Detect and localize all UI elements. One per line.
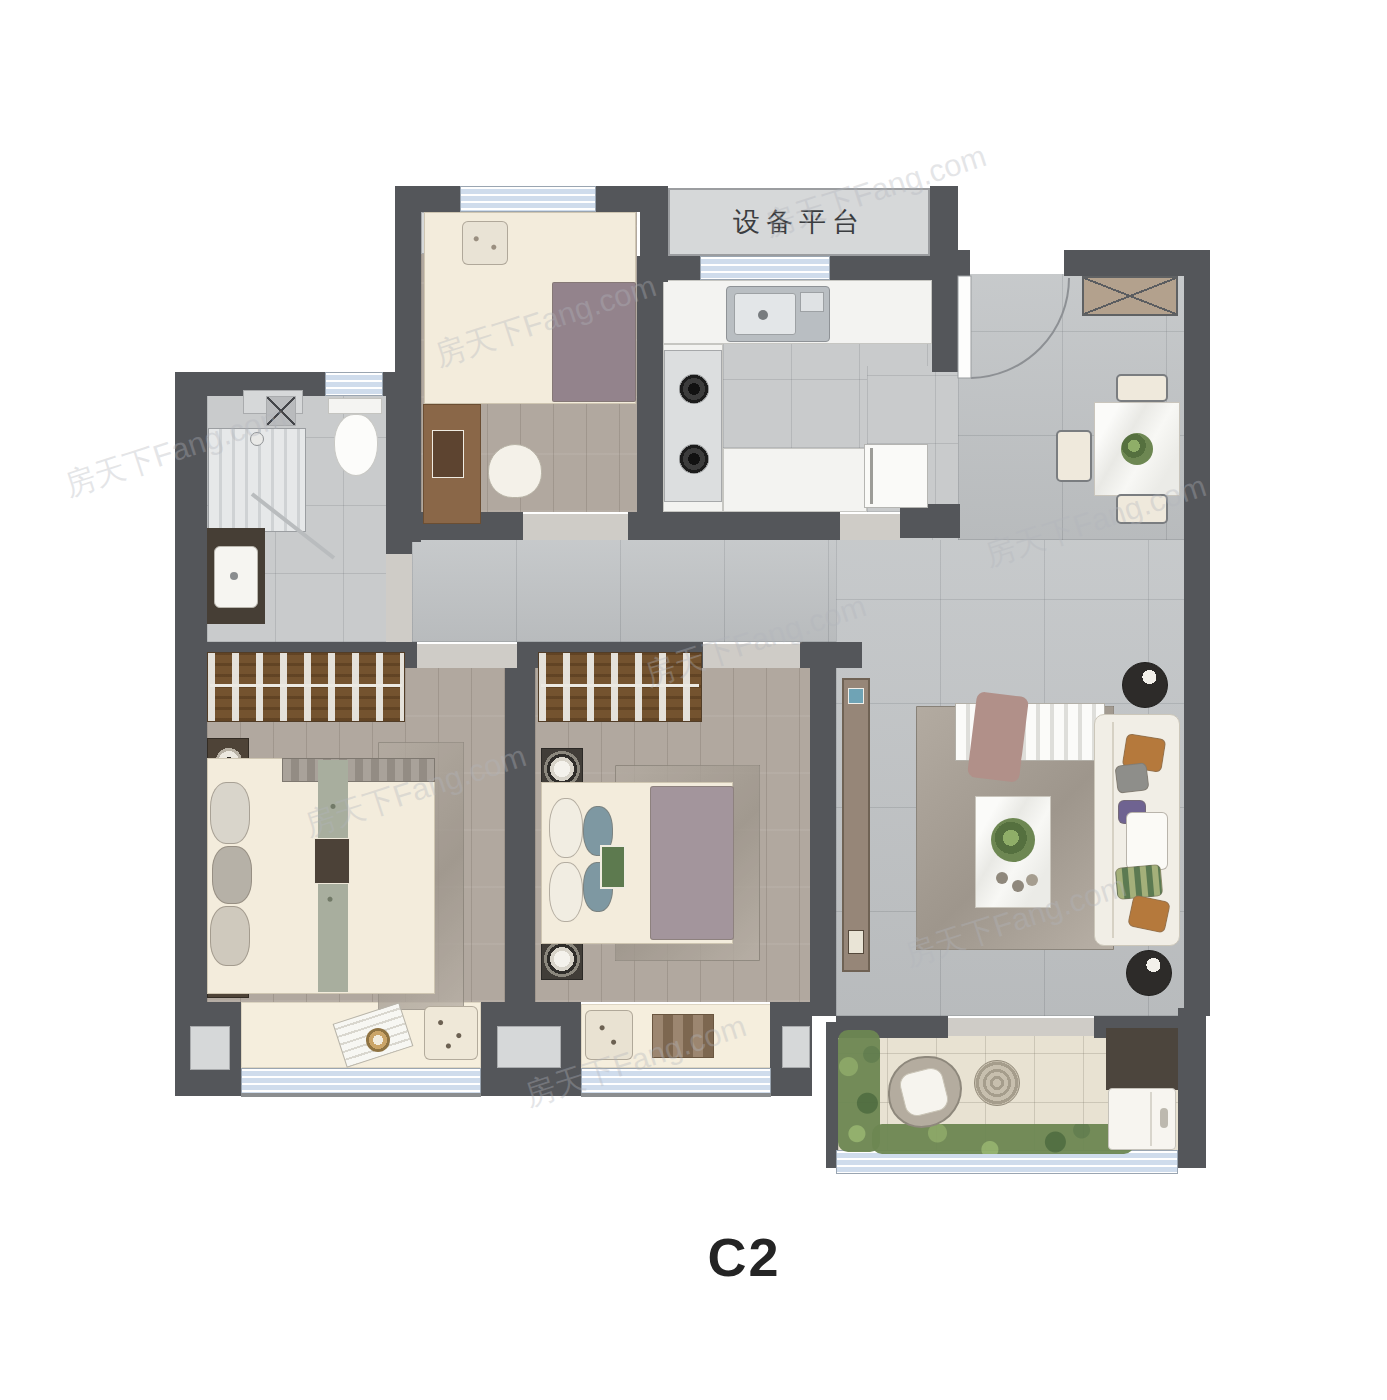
wall-right-outer	[1184, 250, 1210, 1016]
side-table	[1122, 662, 1168, 708]
wall	[628, 512, 840, 540]
floor-plan-page: 设备平台	[0, 0, 1387, 1400]
toilet-bowl	[334, 414, 378, 476]
kitchen-sink-drainboard	[800, 292, 824, 312]
wall-left-outer	[175, 372, 207, 1096]
duct-shaft-icon	[266, 396, 296, 426]
entry-door	[956, 252, 1072, 384]
pillow	[212, 846, 252, 904]
pillow	[210, 906, 250, 966]
nightstand-round	[541, 938, 583, 980]
dining-chair	[1116, 374, 1168, 402]
ottoman	[974, 1060, 1020, 1106]
ac-platform	[782, 1026, 810, 1068]
bay-cup	[366, 1028, 390, 1052]
cabinet-decor	[848, 930, 864, 954]
shower-head-icon	[250, 432, 264, 446]
wall	[505, 668, 535, 1004]
kitchen-counter-bottom	[723, 448, 867, 512]
desk-items	[432, 430, 464, 478]
wardrobe-bedroom2	[538, 652, 702, 722]
window-master-bay	[241, 1068, 481, 1094]
kitchen-faucet-icon	[758, 310, 768, 320]
shoe-cabinet	[1082, 276, 1178, 316]
door-threshold-balcony	[948, 1018, 1094, 1036]
kitchen-appliance	[864, 444, 928, 508]
blanket	[650, 786, 734, 940]
bay-pillow	[424, 1006, 478, 1060]
equipment-platform: 设备平台	[668, 188, 930, 256]
ac-platform	[497, 1026, 561, 1068]
pillow	[210, 782, 250, 844]
wall	[900, 504, 960, 538]
wardrobe-master	[207, 652, 405, 722]
bed-master-bench	[282, 758, 435, 782]
wall	[826, 1022, 838, 1168]
window-sill	[241, 1093, 481, 1097]
bay-pillow	[585, 1010, 633, 1060]
blanket	[552, 282, 636, 402]
door-threshold-master-bedroom	[417, 644, 517, 668]
wall	[830, 256, 932, 280]
wall	[395, 186, 463, 212]
pillow	[549, 798, 583, 858]
tall-cabinet	[842, 678, 870, 972]
bed-tray	[314, 838, 350, 884]
wall	[386, 396, 412, 554]
vanity-faucet-icon	[230, 572, 238, 580]
wall	[1178, 1008, 1206, 1168]
desk-chair	[488, 444, 542, 498]
tv-blanket	[967, 691, 1029, 783]
sofa-seat-line	[1112, 722, 1114, 938]
window-bedroom2-bay	[581, 1068, 771, 1094]
cabinet-decor	[848, 688, 864, 704]
unit-label: C2	[644, 1226, 844, 1288]
pillow	[462, 221, 508, 265]
door-threshold-bathroom	[386, 554, 412, 642]
wall	[810, 668, 836, 1016]
sofa-cushion	[1126, 812, 1168, 870]
washing-machine-door-line	[1150, 1092, 1152, 1146]
sofa-pillow	[1114, 762, 1149, 794]
dining-chair	[1116, 494, 1168, 524]
wall	[594, 186, 644, 212]
kitchen-appliance-handle	[870, 448, 873, 504]
bed-plant-decor	[600, 845, 626, 889]
washing-machine-dial	[1160, 1108, 1168, 1128]
side-table	[1126, 950, 1172, 996]
toilet-tank	[328, 398, 382, 414]
door-threshold-bedroom-small	[523, 514, 628, 540]
door-threshold-bedroom-2	[703, 644, 800, 668]
equipment-platform-label: 设备平台	[733, 204, 865, 240]
stove-burner-icon	[679, 444, 709, 474]
door-threshold-kitchen	[840, 514, 900, 540]
wall	[800, 642, 862, 668]
pillow	[549, 862, 583, 922]
window-bathroom	[325, 372, 383, 396]
stove-burner-icon	[679, 374, 709, 404]
kitchen-stove	[664, 350, 722, 502]
coffee-table-plant	[991, 818, 1035, 862]
window-sill	[581, 1093, 771, 1097]
wall	[637, 256, 663, 538]
balcony-counter	[1106, 1028, 1178, 1090]
wall	[668, 256, 700, 280]
window-bedroom-small	[460, 186, 596, 212]
wall	[932, 276, 958, 372]
wall	[1064, 250, 1186, 276]
dining-plant	[1121, 433, 1153, 465]
window-kitchen	[700, 256, 830, 280]
wall	[380, 372, 412, 396]
balcony-plants	[872, 1124, 1134, 1154]
bay-box	[652, 1014, 714, 1058]
dining-chair	[1056, 430, 1092, 482]
ac-platform	[190, 1026, 230, 1070]
coffee-table-cups	[996, 872, 1008, 884]
